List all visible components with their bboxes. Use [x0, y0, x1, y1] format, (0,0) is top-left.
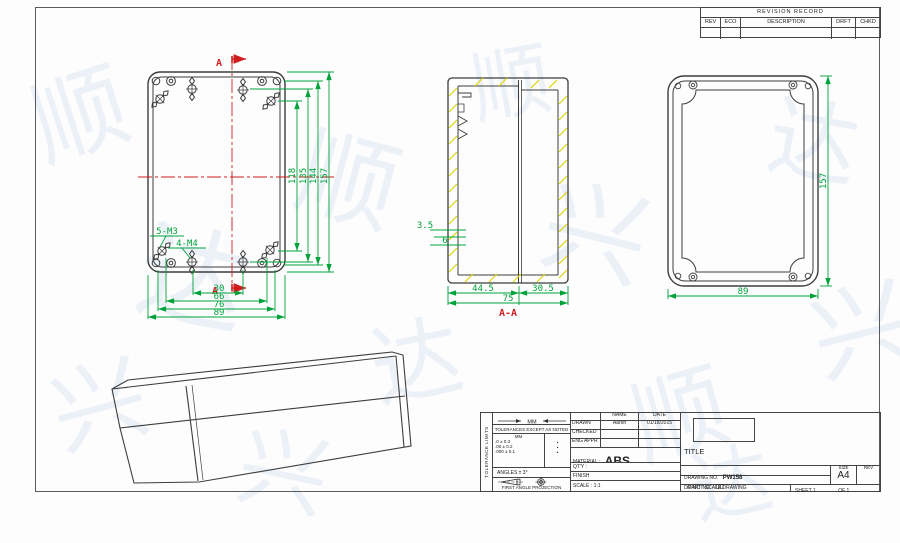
rev-cell: REV: [857, 466, 880, 485]
section-view-label: A-A: [499, 308, 517, 319]
tol-row-3: .000 ± 0.1: [495, 450, 542, 455]
title-block: TOLERANCE LIMITS MM TOLERANCES EXCEPT AS…: [480, 412, 881, 492]
side-strip-label: TOLERANCE LIMITS: [484, 426, 489, 477]
do-not-scale-cell: DO NOT SCALE DRAWING: [681, 485, 791, 491]
dim-75: 75: [503, 294, 514, 304]
dim-30p5: 30.5: [532, 284, 554, 294]
callout-4-m4: 4-M4: [176, 239, 198, 249]
tol-sym-3: •: [545, 451, 570, 456]
dim-135: 135: [299, 168, 309, 184]
drawn-label: DRAWN: [571, 421, 601, 430]
revision-table: REVISION RECORD REV ECO DESCRIPTION DRFT…: [700, 7, 881, 38]
dim-6: 6: [442, 236, 447, 246]
projection-cell: FIRST ANGLE PROJECTION: [493, 478, 571, 491]
revision-table-empty-row: [701, 28, 880, 39]
dim-3p5: 3.5: [417, 221, 433, 231]
dim-157-back: 157: [819, 173, 829, 189]
tolerance-title: TOLERANCES EXCEPT AS NOTED: [493, 425, 571, 434]
section-mark-top: A: [216, 58, 222, 69]
material-value: ABS: [605, 454, 630, 463]
mm-arrows: MM: [493, 414, 571, 425]
dim-157-front: 157: [320, 168, 330, 184]
section-hatch: [449, 78, 567, 282]
dim-118: 118: [288, 168, 298, 184]
of-label: OF 1: [820, 488, 849, 494]
projection-label: FIRST ANGLE PROJECTION: [493, 486, 570, 491]
col-chkd: CHKD: [856, 18, 880, 27]
part-no-cell: /PART NO. 00: [681, 476, 831, 485]
eng-appr-label: ENG APPR: [571, 439, 601, 448]
sheet-cell: SHEET 1 OF 1: [791, 485, 880, 491]
checked-label: CHECKED: [571, 430, 601, 439]
drawn-date: 01/18/2015: [639, 421, 681, 430]
size-cell: SIZE A4: [831, 466, 857, 485]
section-view: [448, 78, 568, 283]
scale-cell: SCALE : 1:1: [571, 481, 681, 491]
date-header: DATE: [639, 413, 681, 421]
tolerance-values: MM .0 ± 0.3 .00 ± 0.2 .000 ± 0.1: [493, 434, 545, 468]
col-rev: REV: [701, 18, 721, 27]
isometric-view: [112, 352, 411, 483]
col-description: DESCRIPTION: [741, 18, 832, 27]
col-drft: DRFT: [832, 18, 856, 27]
callout-5-m3: 5-M3: [156, 227, 178, 237]
dim-44p5: 44.5: [472, 284, 494, 294]
angles-tolerance: ANGLES ± 3°: [493, 468, 571, 478]
dim-144: 144: [309, 168, 319, 184]
front-view-dimensions: [148, 72, 334, 319]
back-view: [668, 76, 818, 286]
size-value: A4: [831, 471, 856, 481]
name-header: NAME: [601, 413, 639, 421]
dim-89-front: 89: [214, 308, 225, 318]
material-cell: MATERIAL : ABS: [571, 448, 681, 463]
tolerance-symbols: • • •: [545, 434, 571, 468]
qty-cell: QT'Y :: [571, 463, 681, 472]
dim-style-cell: MM: [493, 413, 571, 425]
logo-box: [693, 418, 755, 442]
drawn-name: Aaron: [601, 421, 639, 430]
col-eco: ECO: [721, 18, 741, 27]
back-view-dimensions: [668, 76, 832, 299]
title-cell: TITLE: [681, 446, 880, 466]
rev-label: REV: [857, 466, 880, 471]
drawing-no-cell: DRAWING NO. PW158: [681, 466, 831, 476]
revision-table-header: REV ECO DESCRIPTION DRFT CHKD: [701, 18, 880, 28]
sheet-label: SHEET 1: [791, 488, 816, 494]
finish-cell: FINISH: [571, 472, 681, 481]
title-block-side-strip: TOLERANCE LIMITS: [481, 413, 493, 491]
revision-table-title: REVISION RECORD: [701, 8, 880, 18]
dim-89-back: 89: [738, 287, 749, 297]
front-view: [148, 72, 285, 274]
